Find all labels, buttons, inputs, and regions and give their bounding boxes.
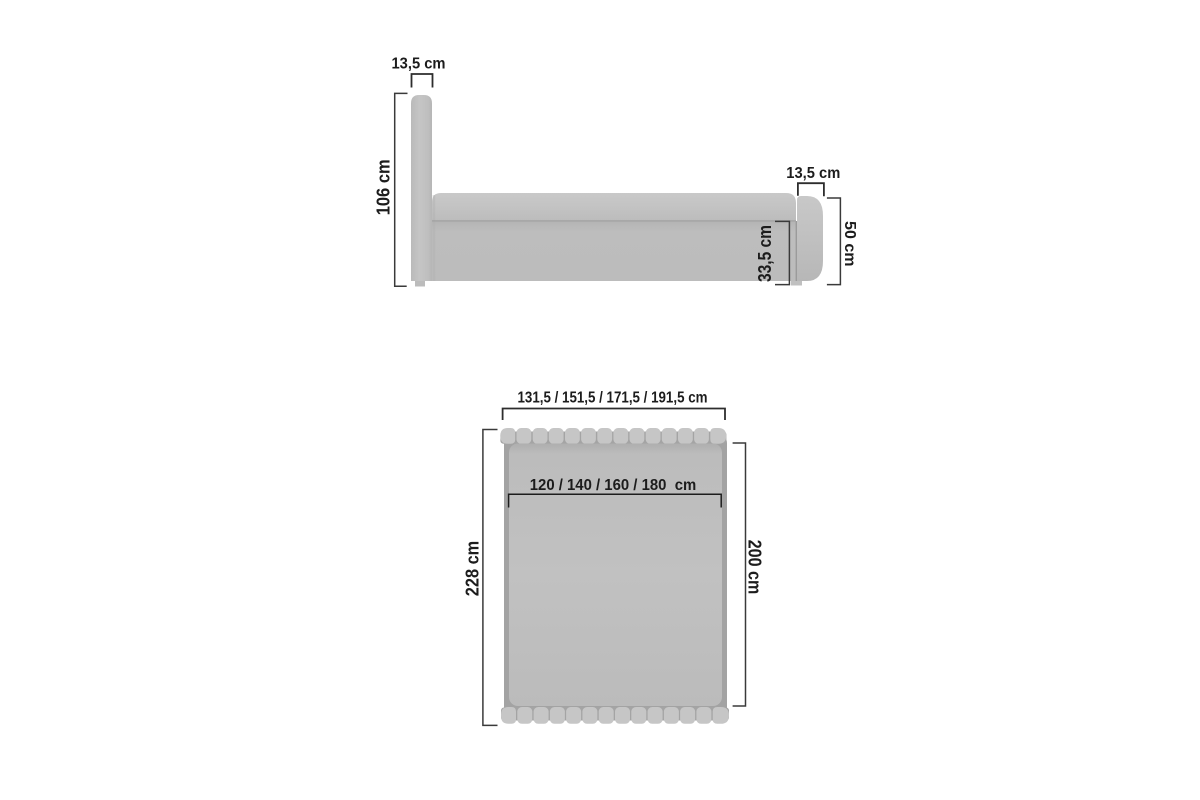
svg-text:131,5 / 151,5 / 171,5 / 191,5: 131,5 / 151,5 / 171,5 / 191,5 cm (518, 389, 708, 406)
svg-text:50 cm: 50 cm (841, 221, 858, 266)
svg-text:120 / 140 / 160 / 180 cm: 120 / 140 / 160 / 180 cm (530, 477, 697, 494)
svg-text:13,5 cm: 13,5 cm (392, 56, 446, 73)
svg-text:106 cm: 106 cm (373, 159, 393, 215)
svg-text:228 cm: 228 cm (463, 541, 483, 597)
svg-text:13,5 cm: 13,5 cm (786, 165, 840, 182)
svg-text:33,5 cm: 33,5 cm (755, 225, 775, 282)
svg-text:200 cm: 200 cm (745, 540, 765, 595)
